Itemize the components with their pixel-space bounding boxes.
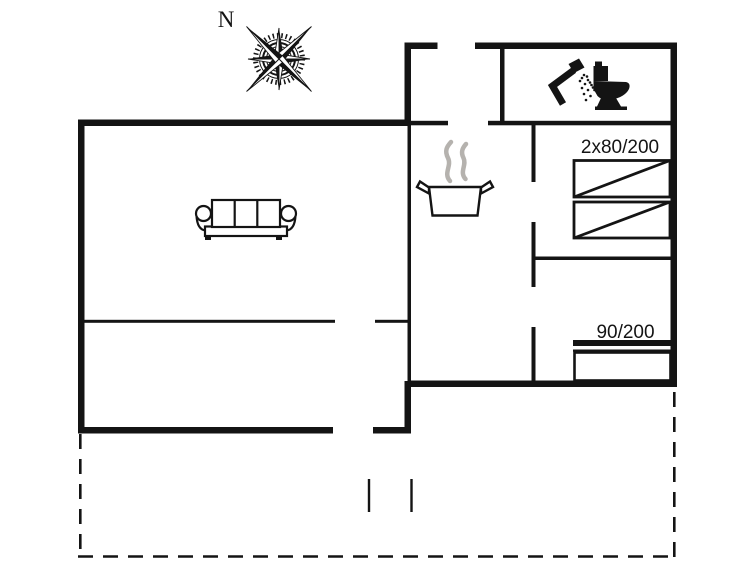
- compass-rose-icon: [247, 27, 312, 92]
- wall-segment: [405, 43, 412, 127]
- wall-segment: [488, 121, 671, 126]
- wall-segment: [405, 43, 438, 50]
- floor-plan-page: N: [0, 0, 755, 566]
- wall-segment: [532, 327, 536, 381]
- wall-segment: [475, 43, 677, 50]
- shower-arm: [553, 70, 575, 104]
- wall-segment: [78, 120, 85, 434]
- wall-segment: [532, 257, 671, 261]
- wall-segment: [78, 427, 333, 434]
- wall-segment: [405, 381, 412, 434]
- steam-icon: [446, 142, 466, 181]
- toilet-bowl: [594, 81, 630, 100]
- cooking-pot-icon: [417, 142, 493, 216]
- wall-segment: [408, 126, 412, 381]
- pot-body: [417, 182, 493, 216]
- bed-headboard: [573, 340, 673, 346]
- bed-size-label: 90/200: [596, 322, 654, 343]
- wall-segment: [532, 222, 536, 287]
- wall-segment: [671, 43, 678, 388]
- single-bed-icon: [574, 161, 670, 198]
- bed-outline: [575, 353, 671, 381]
- wall-segment: [532, 125, 536, 182]
- wall-segment: [84, 320, 335, 323]
- terrace-outline: [78, 392, 676, 558]
- pot-handle: [481, 182, 493, 194]
- wall-segment: [78, 120, 411, 127]
- sofa-back: [212, 200, 280, 227]
- pot-outline: [429, 187, 481, 216]
- sofa-icon: [196, 200, 296, 240]
- sofa-arm: [196, 206, 211, 221]
- single-bed-icon: [573, 340, 673, 381]
- wall-segment: [375, 320, 408, 323]
- wall-segment: [411, 121, 448, 126]
- shower-icon: [553, 59, 596, 105]
- toilet-button: [595, 62, 602, 67]
- sofa-arm: [281, 206, 296, 221]
- north-label: N: [218, 7, 235, 32]
- toilet-icon: [594, 62, 630, 111]
- shower-spray-dots: [579, 74, 596, 102]
- wall-segment: [500, 49, 505, 121]
- bed-size-label: 2x80/200: [581, 137, 659, 158]
- toilet-pedestal: [597, 98, 621, 107]
- toilet-tank: [594, 66, 609, 81]
- single-bed-icon: [574, 202, 670, 238]
- toilet-base: [595, 107, 627, 111]
- bedroom1-beds: 2x80/200: [574, 137, 670, 238]
- floor-plan-drawing: N: [0, 0, 755, 566]
- bedroom2-bed: 90/200: [573, 322, 673, 381]
- pot-handle: [417, 182, 429, 194]
